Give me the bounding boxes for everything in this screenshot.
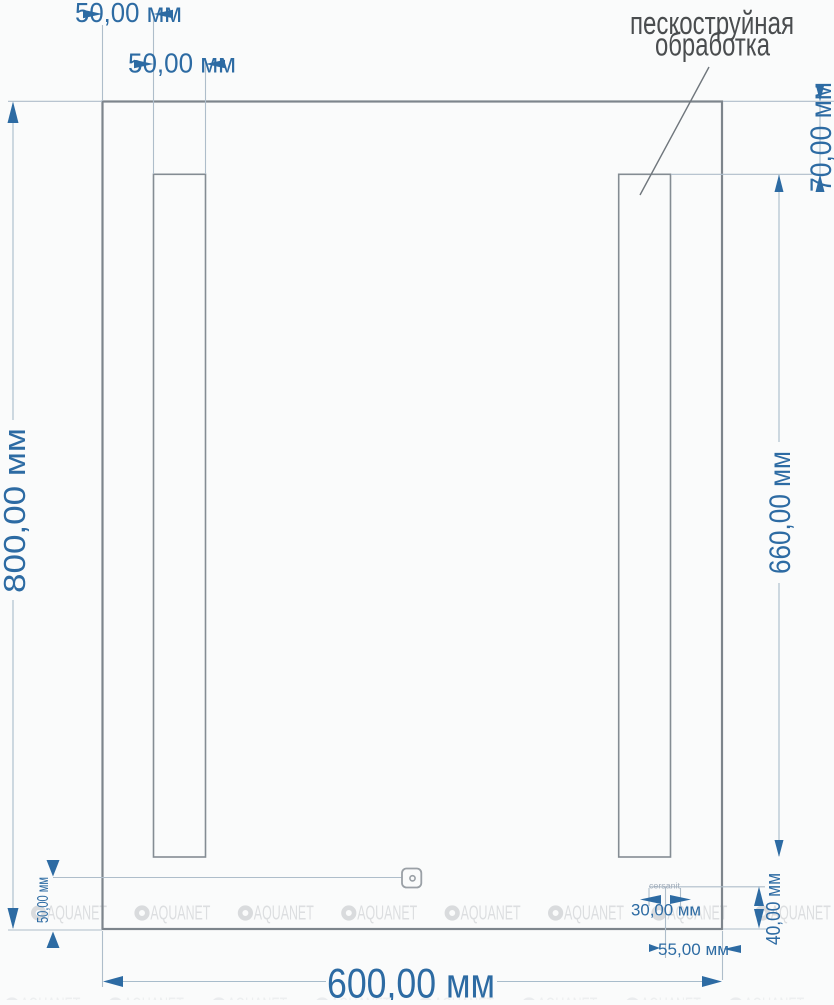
svg-text:AQUANET: AQUANET [641,995,701,1001]
svg-text:600,00 мм: 600,00 мм [327,960,495,1001]
svg-text:40,00 мм: 40,00 мм [763,873,785,945]
svg-text:30,00 мм: 30,00 мм [631,901,701,920]
svg-text:AQUANET: AQUANET [124,995,184,1001]
svg-text:50,00 мм: 50,00 мм [35,877,52,923]
svg-text:cersanit: cersanit [649,882,681,891]
svg-text:AQUANET: AQUANET [20,995,80,1001]
svg-text:обработка: обработка [655,27,770,63]
svg-text:800,00 мм: 800,00 мм [0,428,32,593]
svg-text:AQUANET: AQUANET [47,903,107,925]
svg-text:AQUANET: AQUANET [227,995,287,1001]
svg-text:AQUANET: AQUANET [537,995,597,1001]
svg-text:AQUANET: AQUANET [564,903,624,925]
svg-text:55,00 мм: 55,00 мм [658,940,729,959]
svg-text:AQUANET: AQUANET [254,903,314,925]
svg-text:AQUANET: AQUANET [461,903,521,925]
svg-text:AQUANET: AQUANET [150,903,210,925]
svg-text:660,00 мм: 660,00 мм [764,451,797,574]
svg-text:AQUANET: AQUANET [357,903,417,925]
svg-text:AQUANET: AQUANET [744,995,804,1001]
